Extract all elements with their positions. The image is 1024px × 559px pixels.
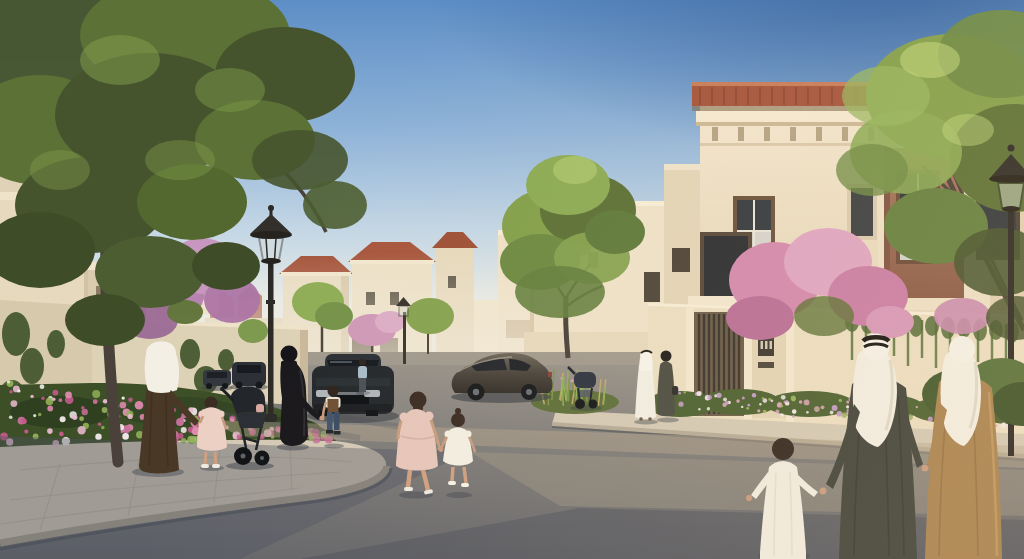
warm-light-wash — [0, 0, 1024, 559]
scene-canvas — [0, 0, 1024, 559]
neighborhood-render — [0, 0, 1024, 559]
